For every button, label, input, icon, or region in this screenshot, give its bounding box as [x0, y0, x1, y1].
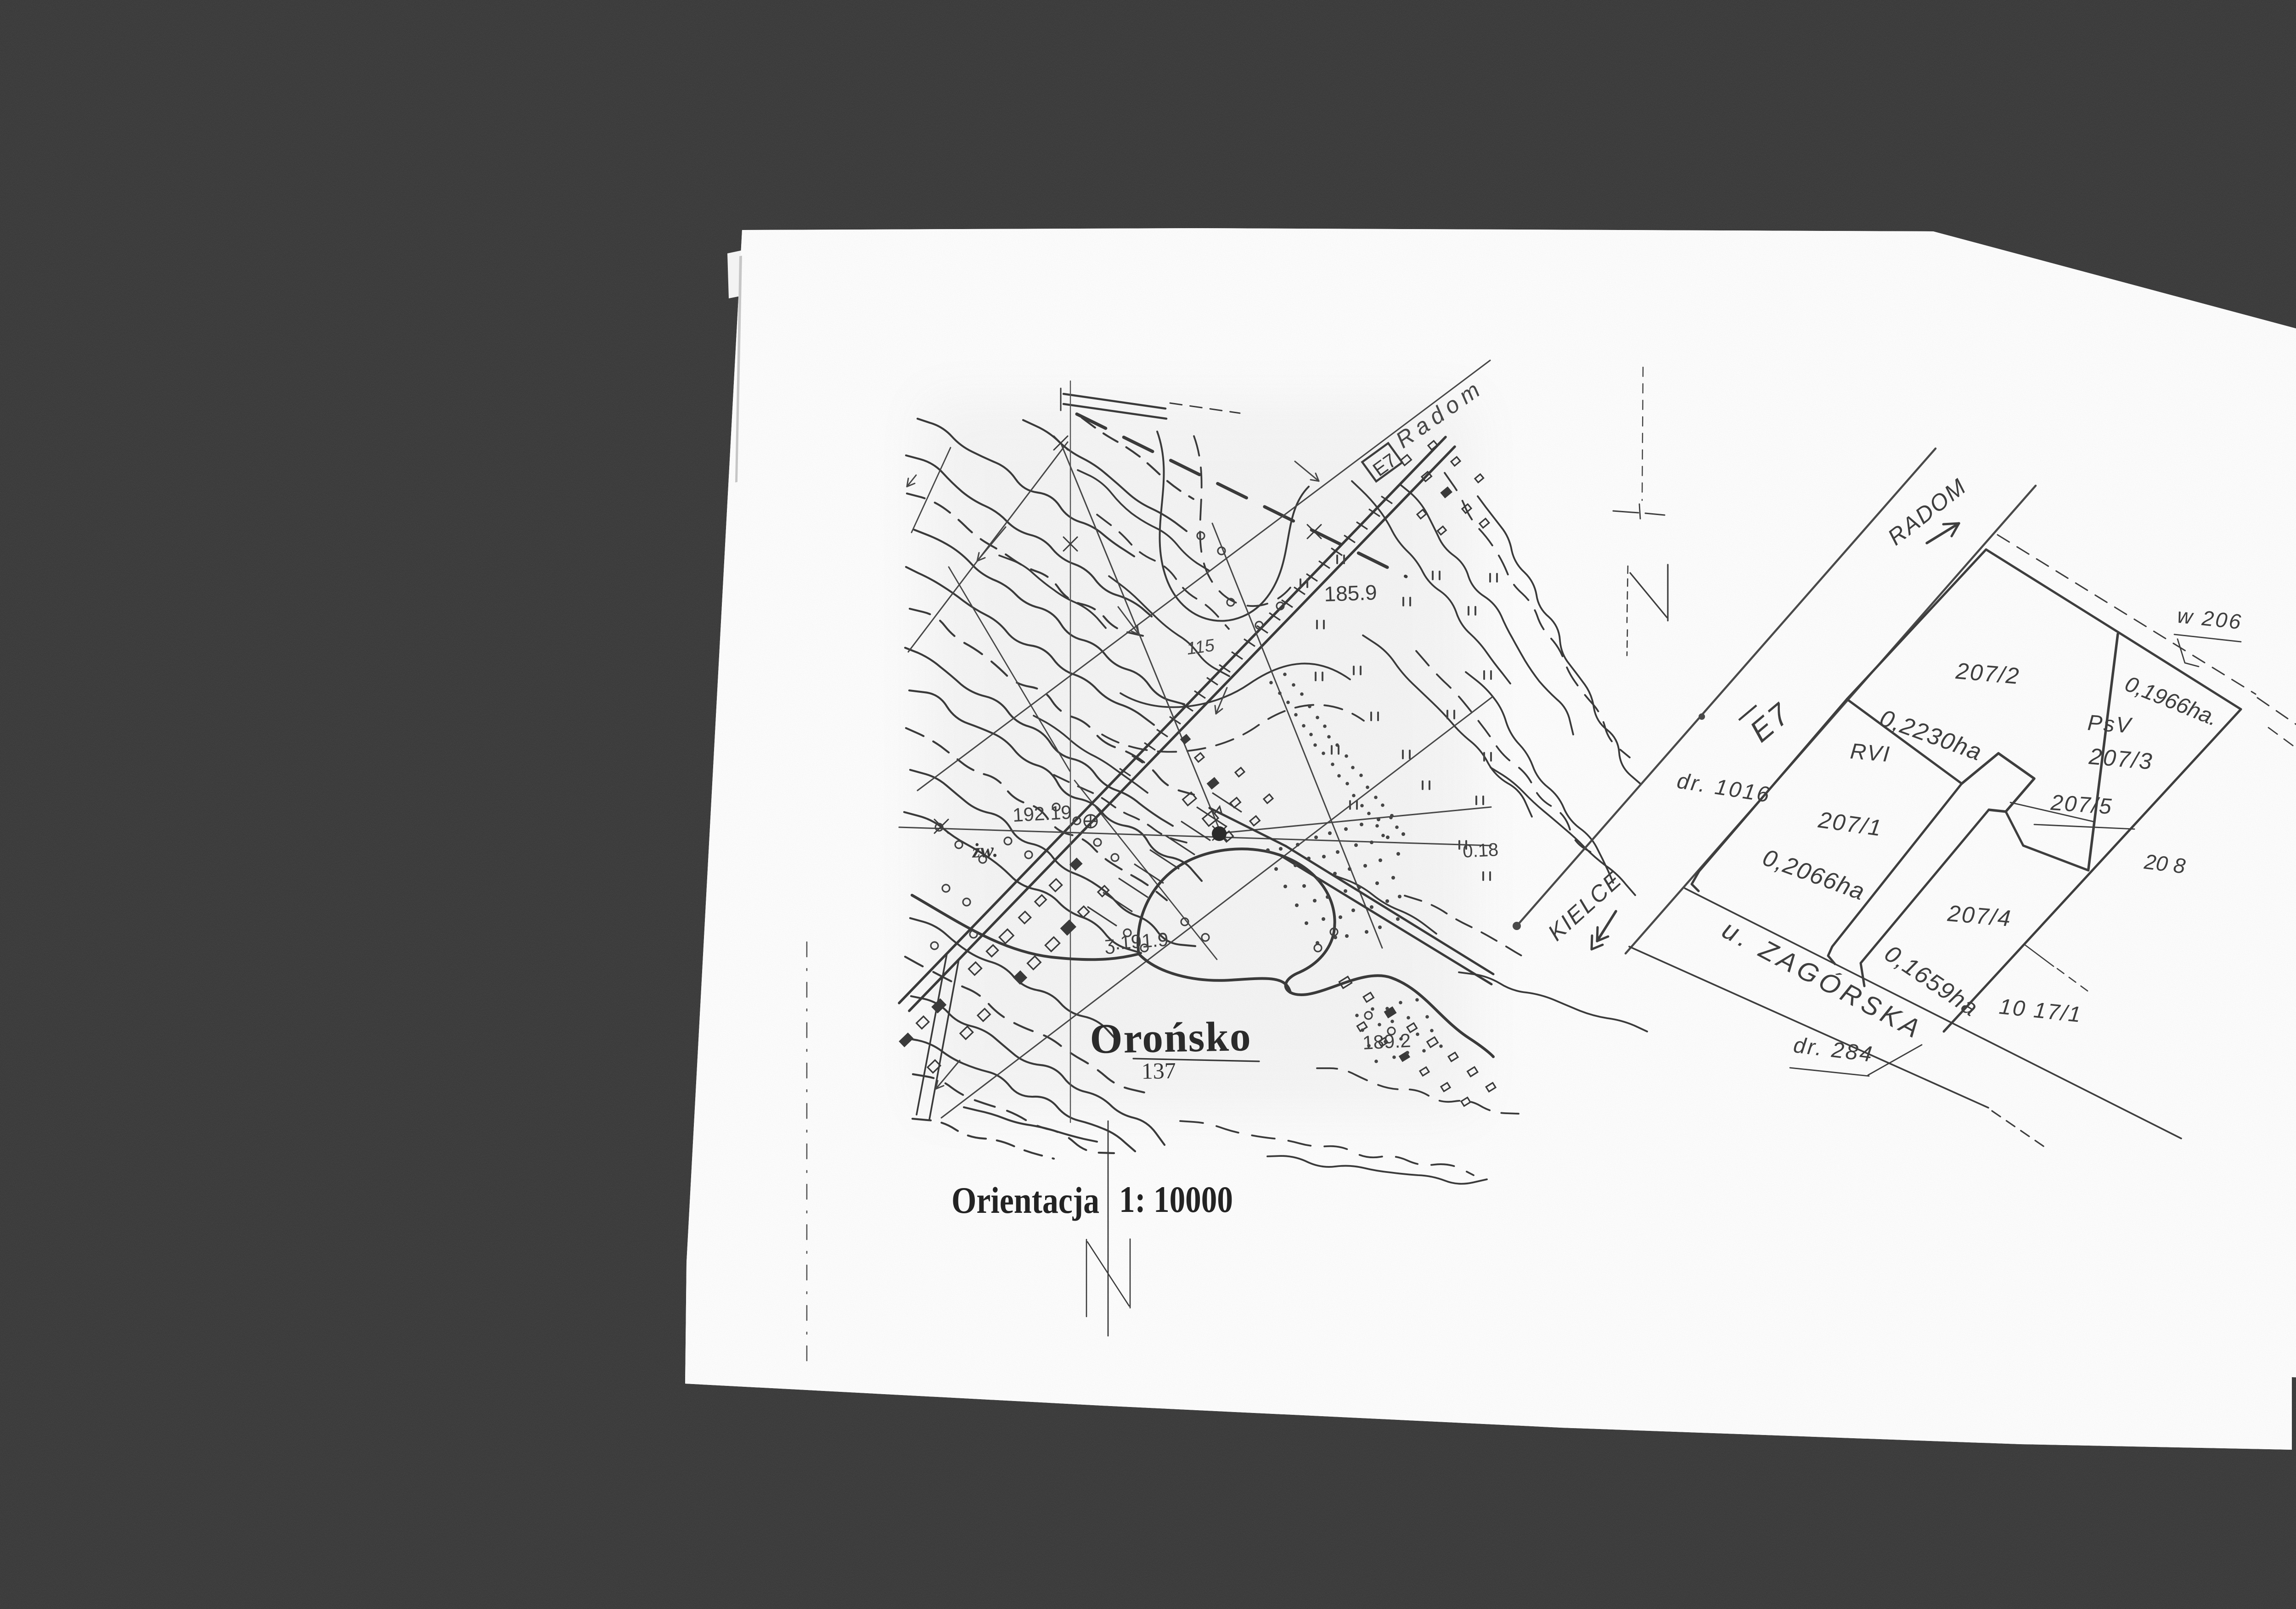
- svg-text:RVI: RVI: [1849, 739, 1891, 767]
- svg-text:137: 137: [1141, 1058, 1176, 1084]
- svg-text:115: 115: [1185, 636, 1216, 659]
- svg-text:ʒ.191.9: ʒ.191.9: [1103, 928, 1169, 954]
- svg-text:Orońsko: Orońsko: [1090, 1013, 1252, 1062]
- svg-text:20 8: 20 8: [2143, 849, 2187, 878]
- svg-text:192.19: 192.19: [1012, 801, 1072, 826]
- svg-text:207/5: 207/5: [2049, 790, 2113, 819]
- svg-text:189.2: 189.2: [1362, 1030, 1411, 1054]
- svg-text:185.9: 185.9: [1324, 580, 1378, 606]
- svg-text:0.18: 0.18: [1462, 840, 1499, 862]
- svg-text:1: 10000: 1: 10000: [1119, 1178, 1233, 1220]
- svg-text:Orientacja: Orientacja: [951, 1179, 1099, 1221]
- svg-text:żw.: żw.: [971, 839, 999, 862]
- svg-text:PsV: PsV: [2087, 711, 2133, 738]
